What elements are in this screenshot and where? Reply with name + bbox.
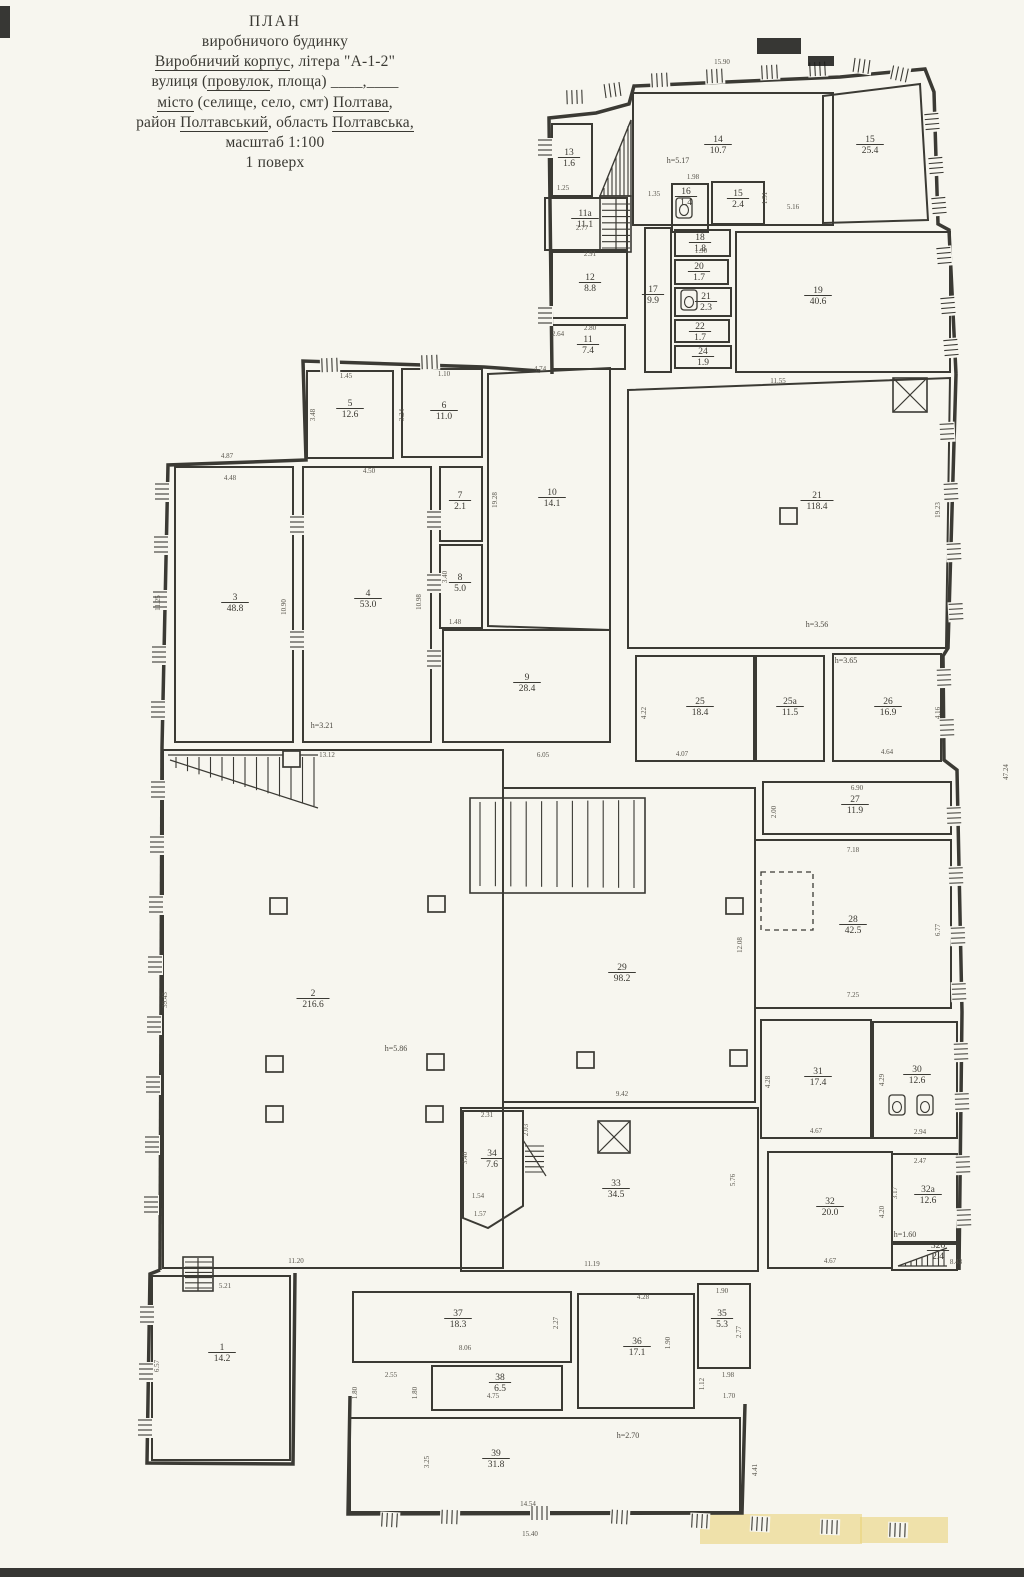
room-area-label: 10.7	[710, 146, 727, 156]
window-icon	[289, 515, 305, 535]
column-marker	[780, 508, 797, 524]
dimension-label: 6.57	[153, 1359, 161, 1372]
dimension-label: 5.21	[219, 1282, 232, 1290]
dimension-label: 10.90	[280, 599, 288, 615]
room-number-label: 24	[698, 347, 708, 357]
room-area-label: 40.6	[810, 297, 827, 307]
dimension-label: 6.05	[537, 751, 550, 759]
scan-artifact	[808, 56, 834, 66]
column-marker	[577, 1052, 594, 1068]
room-label: 201.7	[688, 262, 710, 283]
height-annotation: h=3.21	[311, 721, 334, 730]
room-area-label: 17.4	[810, 1078, 827, 1088]
room-number-label: 3	[233, 593, 238, 603]
dimension-label: 7.18	[847, 846, 860, 854]
window-icon	[939, 295, 957, 316]
window-icon	[151, 645, 167, 665]
room-area-label: 42.5	[845, 926, 862, 936]
dimension-label: 4.22	[640, 706, 648, 719]
dimension-label: 19.23	[934, 502, 942, 518]
window-icon	[426, 510, 442, 530]
room-number-label: 37	[453, 1309, 463, 1319]
window-icon	[380, 1511, 401, 1528]
room-area-label: 1.6	[563, 159, 575, 169]
window-icon	[138, 1362, 154, 1382]
room-number-label: 25	[695, 697, 705, 707]
dimension-label: 2.03	[522, 1123, 530, 1136]
room-area-label: 7.4	[582, 346, 594, 356]
room-area-label: 12.6	[342, 410, 359, 420]
window-icon	[947, 602, 964, 623]
room-number-label: 18	[695, 233, 705, 243]
dimension-label: 11.55	[770, 377, 786, 385]
dimension-label: 1.90	[664, 1336, 672, 1349]
dimension-label: 1.70	[723, 1392, 736, 1400]
room-number-label: 29	[617, 963, 627, 973]
shaft-icon	[893, 378, 927, 412]
room-label: 32а12.6	[914, 1185, 942, 1206]
room-label: 2711.9	[841, 795, 869, 816]
room-label: 114.2	[208, 1343, 236, 1364]
room-number-label: 11	[583, 335, 592, 345]
column-marker	[266, 1106, 283, 1122]
window-icon	[889, 64, 912, 84]
room-label: 131.6	[558, 148, 580, 169]
room-label: 3617.1	[623, 1337, 651, 1358]
height-annotation: h=5.86	[385, 1044, 408, 1053]
room-label: 2998.2	[608, 963, 636, 984]
column-marker	[730, 1050, 747, 1066]
window-icon	[426, 649, 442, 669]
window-icon	[145, 1075, 161, 1095]
room-area-label: 9.9	[647, 296, 659, 306]
dimension-label: 4.50	[363, 467, 376, 475]
room-number-label: 32б	[931, 1240, 946, 1251]
room-area-label: 17.1	[629, 1348, 646, 1358]
room-area-label: 2.4	[732, 200, 744, 210]
window-icon	[956, 1208, 973, 1229]
room-area-label: 31.8	[488, 1460, 505, 1470]
room-number-label: 10	[547, 488, 557, 498]
room-number-label: 20	[694, 262, 704, 272]
room-number-label: 35	[717, 1309, 727, 1319]
room-label: 2842.5	[839, 915, 867, 936]
window-icon	[953, 1042, 970, 1063]
window-icon	[954, 1092, 971, 1113]
room-area-label: 8.8	[584, 284, 596, 294]
window-icon	[939, 718, 956, 739]
dimension-label: 4.64	[881, 748, 894, 756]
window-icon	[537, 138, 553, 158]
window-icon	[154, 482, 170, 502]
dimension-label: 6.90	[851, 784, 864, 792]
column-marker	[726, 898, 743, 914]
room-label: 2616.9	[874, 697, 902, 718]
dimension-label: 14.54	[520, 1500, 536, 1508]
room-label: 348.8	[221, 593, 249, 614]
dimension-label: 4.87	[221, 452, 234, 460]
room-label: 2518.4	[686, 697, 714, 718]
window-icon	[948, 866, 965, 887]
height-annotation: h=2.70	[617, 1431, 640, 1440]
window-icon	[946, 806, 963, 827]
room-number-label: 36	[632, 1337, 642, 1347]
window-icon	[820, 1519, 841, 1536]
room-number-label: 38	[495, 1373, 505, 1383]
room-number-label: 17	[648, 285, 658, 295]
column-marker	[426, 1106, 443, 1122]
window-icon	[148, 895, 164, 915]
exterior-wall	[348, 1396, 745, 1514]
window-icon	[150, 700, 166, 720]
room-number-label: 32а	[921, 1185, 936, 1195]
room-number-label: 32	[825, 1197, 835, 1207]
room-area-label: 34.5	[608, 1190, 625, 1200]
room-number-label: 13	[564, 148, 574, 158]
room-number-label: 27	[850, 795, 860, 805]
window-icon	[139, 1305, 155, 1325]
dimension-label: 2.27	[552, 1316, 560, 1329]
room-label: 3334.5	[602, 1179, 630, 1200]
room-label: 3220.0	[816, 1197, 844, 1218]
column-marker	[427, 1054, 444, 1070]
window-icon	[650, 71, 671, 88]
room-area-label: 18.3	[450, 1320, 467, 1330]
room-label: 212.3	[695, 292, 717, 313]
dimension-label: 2.55	[385, 1371, 398, 1379]
room-label: 928.4	[513, 673, 541, 694]
room-number-label: 22	[695, 322, 705, 332]
dimension-label: 2.47	[914, 1157, 927, 1165]
room-number-label: 31	[813, 1067, 823, 1077]
dimension-label: 4.67	[810, 1127, 823, 1135]
window-icon	[144, 1135, 160, 1155]
exterior-wall	[147, 1270, 295, 1464]
window-icon	[955, 1155, 972, 1176]
window-icon	[150, 780, 166, 800]
dimension-label: 15.40	[522, 1530, 538, 1538]
room-label: 1940.6	[804, 286, 832, 307]
room-area-label: 11.9	[847, 806, 864, 816]
room-area-label: 53.0	[360, 600, 377, 610]
room-area-label: 1.7	[694, 333, 706, 343]
window-icon	[936, 668, 953, 689]
window-icon	[945, 542, 962, 563]
room-area-label: 12.6	[909, 1076, 926, 1086]
dimension-label: 1.45	[340, 372, 353, 380]
shaft-icon	[598, 1121, 630, 1153]
room-label: 347.6	[481, 1149, 503, 1170]
room-label: 3718.3	[444, 1309, 472, 1330]
room-area-label: 25.4	[862, 146, 879, 156]
window-icon	[942, 482, 959, 503]
room-label: 386.5	[489, 1373, 511, 1394]
dimension-label: 2.77	[735, 1325, 743, 1338]
dimension-label: 39.43	[161, 992, 169, 1008]
room-label: 3012.6	[903, 1065, 931, 1086]
dimension-label: 47.24	[1002, 764, 1010, 780]
column-marker	[428, 896, 445, 912]
room-number-label: 19	[813, 286, 823, 296]
window-icon	[149, 835, 165, 855]
window-icon	[440, 1509, 461, 1526]
dimension-label: 8.43	[950, 1258, 963, 1266]
dimension-label: 1.98	[687, 173, 700, 181]
room-area-label: 14.2	[214, 1354, 231, 1364]
room-label: 1014.1	[538, 488, 566, 509]
dimension-label: 7.25	[847, 991, 860, 999]
window-icon	[923, 111, 941, 132]
dimension-label: 4.20	[878, 1205, 886, 1218]
toilet-icon	[917, 1095, 933, 1115]
dimension-label: 1.54	[472, 1192, 485, 1200]
room-area-label: 11.5	[782, 708, 799, 718]
dimension-label: 6.77	[934, 923, 942, 936]
room-area-label: 1.9	[697, 358, 709, 368]
room-number-label: 6	[442, 401, 447, 411]
room-label: 512.6	[336, 399, 364, 420]
dimension-label: 2.80	[584, 324, 597, 332]
dimension-label: 12.08	[736, 937, 744, 953]
room-number-label: 12	[585, 273, 595, 283]
room-area-label: 18.4	[692, 708, 709, 718]
room-label: 117.4	[577, 335, 599, 356]
dimension-label: 4.07	[676, 750, 689, 758]
room-label: 453.0	[354, 589, 382, 610]
room-label: 1410.7	[704, 135, 732, 156]
window-icon	[610, 1508, 631, 1525]
dashed-opening	[761, 872, 813, 930]
dimension-label: 13.12	[319, 751, 335, 759]
room-29-outline	[503, 788, 755, 1102]
dimension-label: 1.35	[648, 190, 661, 198]
window-icon	[602, 81, 624, 100]
room-number-label: 26	[883, 697, 893, 707]
dimension-label: 4.28	[637, 1293, 650, 1301]
window-icon	[690, 1512, 711, 1529]
room-area-label: 48.8	[227, 604, 244, 614]
room-number-label: 30	[912, 1065, 922, 1075]
column-marker	[266, 1056, 283, 1072]
room-label: 128.8	[579, 273, 601, 294]
window-icon	[935, 245, 953, 266]
room-label: 2216.6	[297, 989, 330, 1010]
scan-artifact	[0, 6, 10, 38]
window-icon	[320, 357, 341, 374]
room-number-label: 33	[611, 1179, 621, 1189]
room-label: 25а11.5	[776, 697, 804, 718]
window-icon	[420, 354, 441, 371]
dimension-label: 1.12	[698, 1377, 706, 1390]
window-icon	[950, 926, 967, 947]
scanned-floor-plan-page: { "header": { "lines": [ [{"t":"ПЛАН"}],…	[0, 0, 1024, 1577]
dimension-label: 5.76	[729, 1173, 737, 1186]
window-icon	[143, 1195, 159, 1215]
dimension-label: 4.75	[487, 1392, 500, 1400]
room-label: 152.4	[727, 189, 749, 210]
room-area-label: 5.3	[716, 1320, 728, 1330]
dimension-label: 1.48	[449, 618, 462, 626]
column-marker	[270, 898, 287, 914]
room-area-label: 1.7	[693, 273, 705, 283]
room-number-label: 39	[491, 1449, 501, 1459]
room-2-outline	[163, 750, 503, 1268]
window-icon	[137, 1418, 153, 1438]
dimension-label: 9.42	[616, 1090, 629, 1098]
window-icon	[750, 1515, 771, 1532]
dimension-label: 1.25	[557, 184, 570, 192]
room-label: 3931.8	[482, 1449, 510, 1470]
window-icon	[147, 955, 163, 975]
window-icon	[565, 89, 586, 106]
room-area-label: 2.4	[932, 1252, 944, 1262]
room-label: 85.0	[449, 573, 471, 594]
dimension-label: 2.64	[552, 330, 565, 338]
window-icon	[927, 155, 945, 176]
room-area-label: 1.4	[680, 198, 692, 208]
window-icon	[705, 67, 726, 84]
dimension-label: 1.90	[695, 247, 708, 255]
window-icon	[289, 630, 305, 650]
room-1-outline	[152, 1276, 290, 1460]
room-number-label: 2	[311, 989, 316, 999]
room-area-label: 14.1	[544, 499, 561, 509]
room-number-label: 9	[525, 673, 530, 683]
room-number-label: 7	[458, 491, 463, 501]
room-number-label: 21	[812, 491, 822, 501]
room-label: 355.3	[711, 1309, 733, 1330]
room-area-label: 16.9	[880, 708, 897, 718]
dimension-label: 11.25	[154, 595, 162, 611]
dimension-label: 2.31	[481, 1111, 494, 1119]
window-icon	[760, 63, 781, 80]
window-icon	[851, 57, 873, 76]
window-icon	[942, 337, 960, 358]
dimension-label: 1.98	[722, 1371, 735, 1379]
room-area-label: 28.4	[519, 684, 536, 694]
dimension-label: 1.80	[351, 1386, 359, 1399]
room-label: 21118.4	[801, 491, 834, 512]
dimension-label: 4.48	[224, 474, 237, 482]
dimension-label: 19.28	[491, 492, 499, 508]
height-annotation: h=5.17	[667, 156, 690, 165]
window-icon	[146, 1015, 162, 1035]
toilet-icon	[681, 290, 697, 310]
room-number-label: 4	[366, 589, 371, 599]
dimension-label: 11.20	[288, 1257, 304, 1265]
window-icon	[951, 982, 968, 1003]
toilet-icon	[889, 1095, 905, 1115]
window-icon	[426, 573, 442, 593]
height-annotation: h=3.65	[835, 656, 858, 665]
dimension-label: 3.17	[891, 1186, 899, 1199]
floor-plan-drawing: 131.611а11.1128.8117.41410.7161.4152.417…	[0, 0, 1024, 1577]
window-icon	[153, 535, 169, 555]
height-annotation: h=1.60	[894, 1230, 917, 1239]
dimension-label: 1.90	[716, 1287, 729, 1295]
dimension-label: 3.25	[423, 1455, 431, 1468]
dimension-label: 15.90	[714, 58, 730, 66]
room-area-label: 118.4	[806, 502, 827, 512]
dimension-label: 1.57	[474, 1210, 487, 1218]
height-annotation: h=3.56	[806, 620, 829, 629]
window-icon	[537, 306, 553, 326]
room-number-label: 5	[348, 399, 353, 409]
room-19-outline	[736, 232, 950, 372]
dimension-label: 4.41	[751, 1463, 759, 1476]
room-area-label: 11.0	[436, 412, 453, 422]
dimension-label: 2.00	[770, 805, 778, 818]
room-number-label: 11а	[578, 209, 592, 219]
dimension-label: 4.29	[878, 1073, 886, 1086]
dimension-label: 3.40	[461, 1151, 469, 1164]
window-icon	[888, 1522, 909, 1539]
dimension-label: 2.94	[914, 1128, 927, 1136]
room-39-outline	[350, 1418, 740, 1512]
room-number-label: 34	[487, 1149, 497, 1159]
dimension-label: 8.06	[459, 1344, 472, 1352]
dimension-label: 1.10	[438, 370, 451, 378]
room-number-label: 21	[701, 292, 711, 302]
column-marker	[283, 751, 300, 767]
dimension-label: 3.48	[309, 408, 317, 421]
window-icon	[938, 422, 955, 443]
room-number-label: 15	[865, 135, 875, 145]
dimension-label: 11.19	[584, 1260, 600, 1268]
plan-line	[523, 1140, 546, 1176]
room-number-label: 15	[733, 189, 743, 199]
room-number-label: 16	[681, 187, 691, 197]
room-area-label: 216.6	[302, 1000, 324, 1010]
room-label: 611.0	[430, 401, 458, 422]
dimension-label: 2.91	[584, 250, 597, 258]
room-label: 72.1	[449, 491, 471, 512]
room-area-label: 2.3	[700, 303, 712, 313]
dimension-label: 1.51	[761, 191, 769, 204]
room-label: 3117.4	[804, 1067, 832, 1088]
dimension-label: 4.67	[824, 1257, 837, 1265]
room-area-label: 12.6	[920, 1196, 937, 1206]
room-area-label: 2.1	[454, 502, 466, 512]
dimension-label: 3.24	[398, 408, 406, 421]
room-number-label: 28	[848, 915, 858, 925]
dimension-label: 1.80	[411, 1386, 419, 1399]
room-area-label: 98.2	[614, 974, 631, 984]
room-number-label: 25а	[783, 697, 798, 707]
room-number-label: 8	[458, 573, 463, 583]
dimension-label: 5.16	[787, 203, 800, 211]
room-area-label: 20.0	[822, 1208, 839, 1218]
dimension-label: 4.16	[934, 706, 942, 719]
room-label: 221.7	[689, 322, 711, 343]
dimension-label: 4.28	[764, 1075, 772, 1088]
room-label: 241.9	[692, 347, 714, 368]
room-area-label: 7.6	[486, 1160, 498, 1170]
room-area-label: 5.0	[454, 584, 466, 594]
room-number-label: 1	[220, 1343, 225, 1353]
room-number-label: 14	[713, 135, 723, 145]
room-label: 1525.4	[856, 135, 884, 156]
dimension-label: 10.98	[415, 594, 423, 610]
scan-artifact	[757, 38, 801, 54]
window-icon	[930, 195, 948, 216]
scan-artifact	[0, 1568, 1024, 1577]
dimension-label: 3.40	[441, 570, 449, 583]
dimension-label: 2.77	[576, 224, 589, 232]
dimension-label: 4.74	[534, 365, 547, 373]
exterior-wall	[160, 748, 162, 1270]
